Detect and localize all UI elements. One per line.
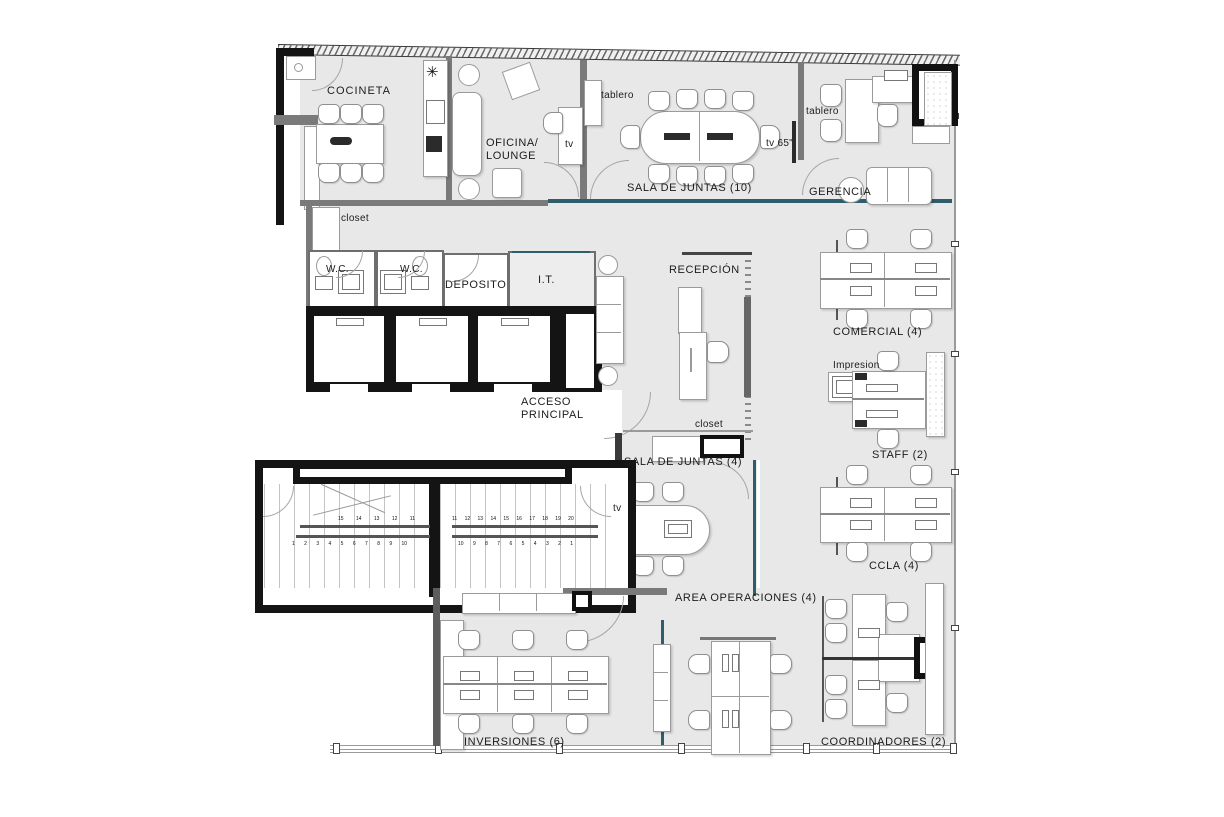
closet-top-box — [312, 207, 340, 255]
chair — [704, 89, 726, 109]
floor-plan: ✳ — [0, 0, 1224, 817]
side-table-round — [598, 255, 618, 275]
wall-nw-corner — [274, 115, 318, 125]
table-screen — [664, 133, 690, 140]
chair — [543, 112, 563, 134]
chair — [846, 542, 868, 562]
gerencia-drawer — [884, 70, 908, 81]
monitor — [514, 690, 534, 700]
chair — [886, 693, 908, 713]
room-label-staff: STAFF (2) — [872, 449, 928, 462]
desk-accessory — [855, 420, 867, 427]
room-label-oficina-lounge: OFICINA/ LOUNGE — [486, 137, 538, 163]
stair-step-numbers: 15 14 13 12 11 — [338, 516, 415, 522]
monitor — [866, 384, 898, 392]
elevator-door — [501, 318, 529, 326]
mullion-tick — [803, 743, 810, 754]
reception-counter-back — [678, 287, 702, 334]
monitor — [568, 690, 588, 700]
room-label-recepcion: RECEPCIÓN — [669, 264, 740, 277]
desk-center-line — [443, 683, 607, 685]
monitor — [850, 498, 872, 508]
reception-desk — [679, 332, 707, 400]
chair — [566, 630, 588, 650]
chair — [340, 163, 362, 183]
elevator-door — [336, 318, 364, 326]
chair — [770, 654, 792, 674]
stair-rail — [300, 525, 430, 528]
desk-spine — [822, 657, 914, 660]
desk-groove — [690, 348, 692, 372]
facade-tick — [951, 351, 959, 357]
monitor — [460, 690, 480, 700]
ceiling-fan-icon: ✳ — [426, 65, 439, 80]
chair — [877, 429, 899, 449]
chair — [825, 623, 847, 643]
elevator-opening — [412, 384, 450, 392]
wall-sala10-gerencia — [798, 62, 804, 160]
desk-divider — [739, 641, 740, 753]
chair — [318, 163, 340, 183]
room-label-ccla: CCLA (4) — [869, 560, 919, 573]
chair — [825, 599, 847, 619]
chair — [825, 699, 847, 719]
monitor — [850, 286, 872, 296]
chair — [846, 465, 868, 485]
stair-step-numbers: 11 12 13 14 15 16 17 18 19 20 — [452, 516, 574, 522]
shaft-duct — [566, 314, 594, 388]
lounge-sofa — [452, 92, 482, 176]
privacy-screen-top — [700, 637, 776, 640]
gerencia-sideboard — [912, 126, 950, 144]
terrace-drain — [294, 63, 303, 72]
monitor — [915, 286, 937, 296]
side-table-round — [598, 366, 618, 386]
stair-top-wall-core — [300, 469, 565, 477]
stair-rail — [452, 525, 598, 528]
monitor — [850, 520, 872, 530]
cabinet-seam — [499, 594, 500, 611]
toilet-tank — [315, 276, 333, 290]
monitor — [568, 671, 588, 681]
glass-mullion-strip — [745, 257, 751, 297]
closet-niche — [700, 435, 744, 458]
table-tray — [330, 137, 352, 145]
room-label-it: I.T. — [538, 274, 555, 287]
sofa-seam — [908, 168, 909, 202]
chair — [707, 341, 729, 363]
chair — [458, 630, 480, 650]
mullion-tick — [950, 743, 957, 754]
cabinet-seam — [654, 672, 668, 673]
label-closet-recepcion: closet — [695, 418, 723, 431]
chair — [688, 654, 710, 674]
room-label-sala-juntas-10: SALA DE JUNTAS (10) — [627, 182, 752, 195]
gerencia-sofa — [866, 167, 932, 205]
chair — [732, 91, 754, 111]
glass-mullion-strip — [745, 397, 751, 440]
workstation-ccla — [820, 487, 952, 543]
chair — [688, 710, 710, 730]
monitor — [722, 654, 729, 672]
monitor — [850, 263, 872, 273]
stair-divider-wall — [429, 484, 440, 597]
room-label-cocineta: COCINETA — [327, 85, 391, 98]
monitor — [732, 654, 739, 672]
cabinet-seam — [654, 700, 668, 701]
bench-seam — [597, 332, 621, 333]
monitor — [722, 710, 729, 728]
chair — [512, 714, 534, 734]
monitor — [915, 498, 937, 508]
monitor — [915, 263, 937, 273]
reception-north-wall — [682, 252, 752, 255]
coffee-maker — [426, 136, 442, 152]
sofa-seam — [887, 168, 888, 202]
chair — [566, 714, 588, 734]
label-tv-lounge: tv — [565, 138, 573, 151]
chair — [820, 119, 842, 142]
chair — [662, 482, 684, 502]
stair-rail — [452, 535, 598, 538]
monitor — [866, 410, 898, 418]
chair — [877, 104, 898, 127]
gerencia-window-panel — [924, 72, 952, 126]
label-closet-top: closet — [341, 212, 369, 225]
south-window-line-3 — [330, 752, 955, 753]
chair — [362, 104, 384, 124]
inversiones-west-wall — [433, 588, 440, 746]
elevator-opening — [494, 384, 532, 392]
low-cabinets — [462, 593, 576, 614]
wall-top-band-south — [300, 200, 548, 206]
chair — [770, 710, 792, 730]
elevator-opening — [330, 384, 368, 392]
chair — [648, 164, 670, 184]
tablero-cabinet — [584, 80, 602, 126]
south-window-line-2 — [330, 749, 955, 750]
east-facade-line — [954, 60, 956, 750]
it-glass-line — [512, 251, 590, 253]
room-label-wc1: W.C. — [326, 263, 349, 276]
cabinet-seam — [536, 594, 537, 611]
storage-cabinets — [653, 644, 671, 732]
workstation-operaciones — [711, 641, 771, 755]
desk-center-line — [820, 278, 950, 280]
room-label-comercial: COMERCIAL (4) — [833, 326, 922, 339]
reception-glass-door — [744, 297, 751, 397]
desk-center-line — [820, 513, 950, 515]
chair — [886, 602, 908, 622]
monitor — [732, 710, 739, 728]
chair — [820, 84, 842, 107]
label-tablero-gerencia: tablero — [806, 105, 839, 118]
label-tablero-sala10: tablero — [601, 89, 634, 102]
chair — [620, 125, 640, 149]
toilet-tank — [411, 276, 429, 290]
label-tv-sala4: tv — [613, 502, 621, 515]
chair — [340, 104, 362, 124]
reception-bench — [596, 276, 624, 364]
desk-drawer — [858, 628, 880, 638]
lounge-ottoman — [492, 168, 522, 198]
bench-seam — [597, 304, 621, 305]
room-label-area-operaciones: AREA OPERACIONES (4) — [675, 592, 817, 605]
printer-unit — [572, 591, 592, 611]
mullion-tick — [678, 743, 685, 754]
monitor — [915, 520, 937, 530]
workstation-inversiones — [443, 656, 609, 714]
facade-tick — [951, 241, 959, 247]
chair — [877, 351, 899, 371]
conference-table-10 — [640, 111, 760, 164]
chair — [318, 104, 340, 124]
room-label-deposito: DEPOSITO — [445, 279, 506, 292]
mullion-tick — [333, 743, 340, 754]
chair — [846, 229, 868, 249]
room-label-coordinadores: COORDINADORES (2) — [821, 736, 946, 749]
kitchen-sink — [426, 100, 445, 124]
label-impresion: Impresion — [833, 359, 880, 372]
chair — [732, 164, 754, 184]
room-label-inversiones: INVERSIONES (6) — [464, 736, 565, 749]
chair — [458, 714, 480, 734]
chair — [362, 163, 384, 183]
chair — [662, 556, 684, 576]
table-seam — [699, 112, 700, 161]
stair-rail — [296, 535, 430, 538]
workstation-comercial — [820, 252, 952, 309]
stair-step-numbers: 1 2 3 4 5 6 7 8 9 10 — [292, 541, 407, 547]
tall-panel — [925, 583, 944, 735]
facade-tick — [951, 625, 959, 631]
chair — [512, 630, 534, 650]
tall-cabinet — [926, 352, 945, 437]
chair — [910, 542, 932, 562]
label-acceso-principal: ACCESO PRINCIPAL — [521, 396, 584, 422]
monitor — [460, 671, 480, 681]
room-label-sala-juntas-4: SALA DE JUNTAS (4) — [624, 456, 742, 469]
table-screen — [707, 133, 733, 140]
desk-divider — [711, 696, 769, 697]
monitor — [514, 671, 534, 681]
chair — [910, 465, 932, 485]
facade-tick — [951, 469, 959, 475]
chair — [676, 89, 698, 109]
desk-drawer — [858, 680, 880, 690]
elevator-door — [419, 318, 447, 326]
lounge-table-round — [458, 64, 480, 86]
stair-step-numbers: 10 9 8 7 6 5 4 3 2 1 — [458, 541, 573, 547]
sala4-east-glass — [753, 460, 756, 596]
closet-top-line — [623, 430, 753, 432]
desk-center-line — [852, 398, 924, 400]
wall-west — [276, 125, 284, 225]
chair — [825, 675, 847, 695]
chair — [910, 229, 932, 249]
table-hub-inner — [668, 524, 688, 534]
label-tv-65: tv 65" — [766, 137, 793, 150]
room-label-wc2: W.C. — [400, 263, 423, 276]
lounge-table-round — [458, 178, 480, 200]
desk-accessory — [855, 373, 867, 380]
chair — [648, 91, 670, 111]
room-label-gerencia: GERENCIA — [809, 186, 871, 199]
